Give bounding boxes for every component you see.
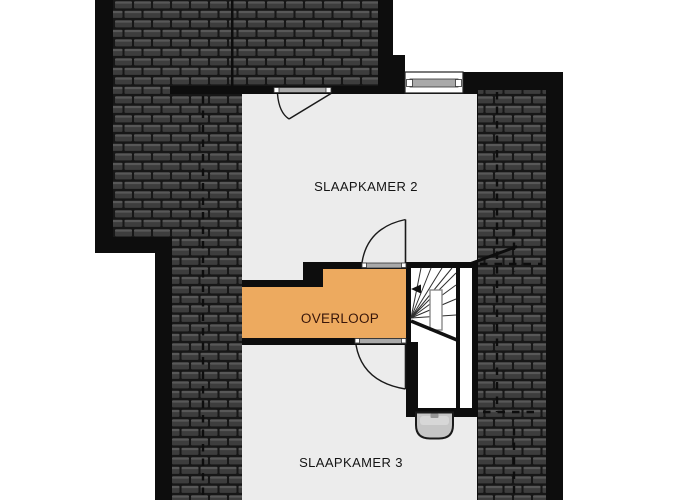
wall-slaapkamer2-top-right xyxy=(332,86,378,94)
wall-overloop-top-thin xyxy=(323,262,362,269)
washbasin-icon xyxy=(416,413,453,439)
window-icon xyxy=(405,72,463,93)
washbasin-tap xyxy=(431,414,439,419)
door-threshold xyxy=(355,339,406,344)
roof-area-left-column xyxy=(113,0,172,237)
roof-area-top xyxy=(172,0,378,86)
staircase xyxy=(406,262,478,417)
stair-handrail xyxy=(430,290,442,330)
wall-overloop-notch xyxy=(303,262,323,287)
door-jamb-left xyxy=(274,88,279,93)
roof-area-center-left-strip xyxy=(172,94,242,500)
door-threshold xyxy=(362,263,406,268)
label-slaapkamer2: SLAAPKAMER 2 xyxy=(314,179,418,194)
window-glazing xyxy=(410,79,458,87)
door-jamb-left xyxy=(355,339,360,344)
floorplan-page: SLAAPKAMER 2 OVERLOOP SLAAPKAMER 3 xyxy=(0,0,700,500)
label-slaapkamer3: SLAAPKAMER 3 xyxy=(299,455,403,470)
door-threshold xyxy=(274,88,331,93)
roof-ridge-line xyxy=(231,0,234,86)
label-overloop: OVERLOOP xyxy=(301,311,379,326)
stair-side-shaft xyxy=(460,268,472,408)
wall-overloop-top xyxy=(242,280,303,287)
wall-overloop-bottom xyxy=(242,338,355,345)
door-jamb-right xyxy=(326,88,331,93)
understair-void xyxy=(418,342,456,408)
door-jamb-left xyxy=(362,263,367,268)
window-jamb-left xyxy=(407,80,413,87)
floorplan-drawing: SLAAPKAMER 2 OVERLOOP SLAAPKAMER 3 xyxy=(0,0,700,500)
door-jamb-right xyxy=(402,339,407,344)
door-jamb-right xyxy=(402,263,407,268)
roof-area-right-strip xyxy=(478,90,546,500)
wall-slaapkamer2-top-left xyxy=(170,86,273,94)
window-jamb-right xyxy=(456,80,462,87)
